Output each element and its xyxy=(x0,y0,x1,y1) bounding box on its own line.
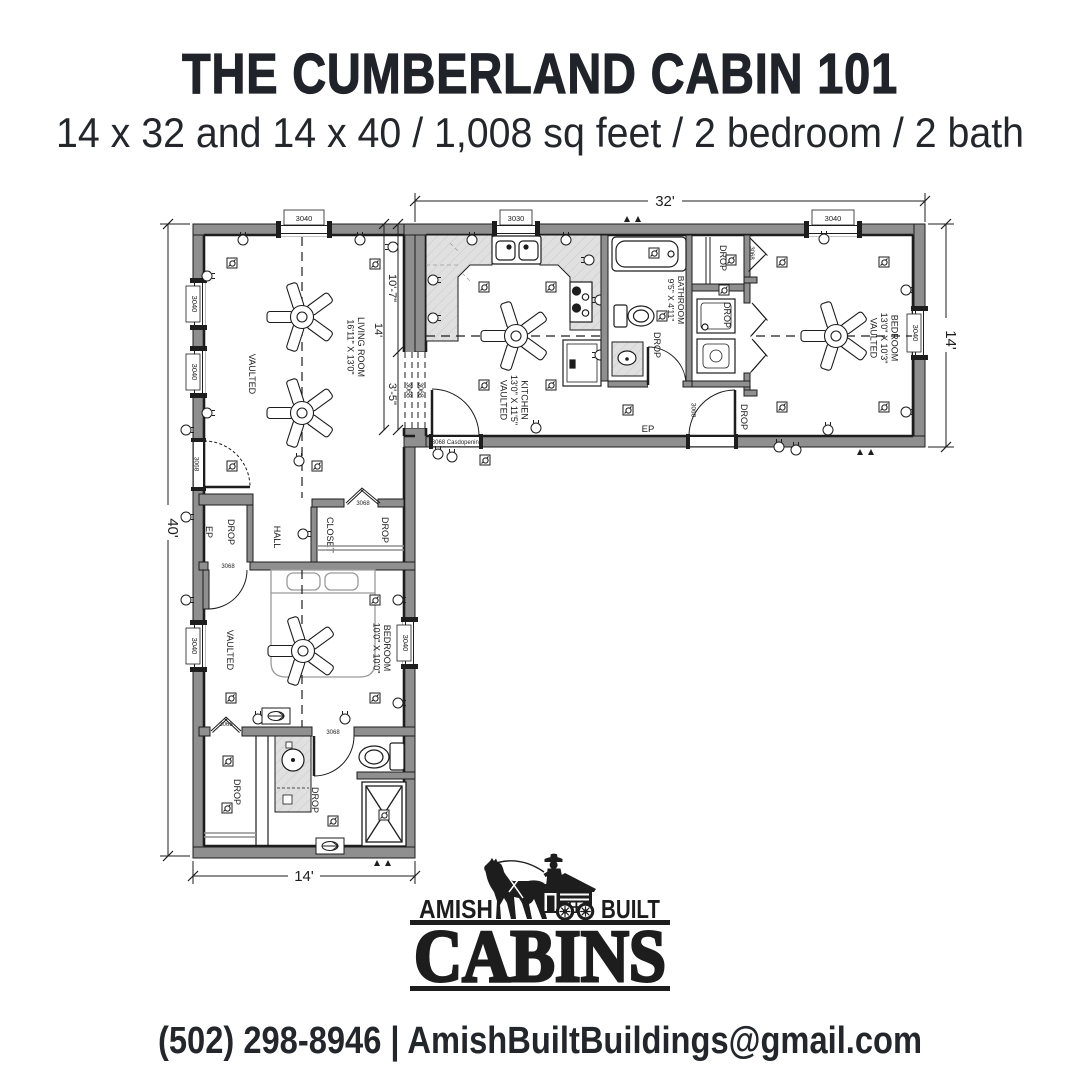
svg-text:3'-5": 3'-5" xyxy=(386,383,398,405)
svg-text:DROP: DROP xyxy=(226,519,236,545)
svg-text:3040: 3040 xyxy=(190,638,199,655)
svg-text:3040: 3040 xyxy=(911,325,920,342)
svg-text:3068: 3068 xyxy=(417,382,424,398)
svg-text:CABINS: CABINS xyxy=(414,916,666,998)
svg-text:3068: 3068 xyxy=(219,722,233,728)
svg-text:3068 Casdopening: 3068 Casdopening xyxy=(432,440,482,446)
svg-text:BATHROOM: BATHROOM xyxy=(676,276,686,324)
svg-text:KITCHEN: KITCHEN xyxy=(519,380,529,420)
svg-text:9'5" X 4'11": 9'5" X 4'11" xyxy=(666,279,676,322)
svg-text:3068: 3068 xyxy=(221,564,235,570)
svg-text:3068: 3068 xyxy=(405,382,412,398)
svg-text:BEDROOM: BEDROOM xyxy=(889,315,899,362)
svg-text:32': 32' xyxy=(655,193,675,210)
svg-text:3068: 3068 xyxy=(193,457,200,472)
svg-text:10'-7": 10'-7" xyxy=(386,274,398,302)
svg-text:13'0" X 11'5": 13'0" X 11'5" xyxy=(509,375,519,425)
svg-text:VAULTED: VAULTED xyxy=(225,630,235,671)
svg-text:DROP: DROP xyxy=(232,779,242,805)
svg-text:14': 14' xyxy=(372,323,384,337)
svg-text:VAULTED: VAULTED xyxy=(868,318,878,359)
svg-text:3040: 3040 xyxy=(825,214,842,223)
svg-text:EP: EP xyxy=(204,526,214,538)
svg-text:13'0" X 10'3": 13'0" X 10'3" xyxy=(879,313,889,364)
svg-text:THE CUMBERLAND CABIN 101: THE CUMBERLAND CABIN 101 xyxy=(182,42,898,106)
svg-text:DROP: DROP xyxy=(380,517,390,543)
svg-text:LIVING ROOM: LIVING ROOM xyxy=(356,317,366,377)
svg-text:40': 40' xyxy=(164,518,181,538)
svg-text:3068: 3068 xyxy=(748,246,754,260)
svg-text:14': 14' xyxy=(942,330,959,350)
svg-text:DROP: DROP xyxy=(652,332,662,358)
svg-text:BEDROOM: BEDROOM xyxy=(382,625,392,672)
svg-text:VAULTED: VAULTED xyxy=(247,354,257,395)
svg-text:(502) 298-8946 | AmishBuiltBui: (502) 298-8946 | AmishBuiltBuildings@gma… xyxy=(158,1020,922,1062)
svg-text:3068: 3068 xyxy=(326,730,340,736)
svg-text:DROP: DROP xyxy=(739,404,749,430)
svg-text:3030: 3030 xyxy=(508,214,525,223)
svg-text:14': 14' xyxy=(294,868,314,885)
svg-text:HALL: HALL xyxy=(272,526,282,549)
svg-text:3040: 3040 xyxy=(190,296,199,313)
svg-text:3040: 3040 xyxy=(296,214,313,223)
svg-text:VAULTED: VAULTED xyxy=(498,380,508,421)
svg-text:CLOSET: CLOSET xyxy=(325,517,335,554)
svg-text:10'0" X 10'0": 10'0" X 10'0" xyxy=(372,623,382,674)
svg-text:14 x 32 and 14 x 40 / 1,008 sq: 14 x 32 and 14 x 40 / 1,008 sq feet / 2 … xyxy=(56,109,1024,156)
svg-text:3040: 3040 xyxy=(190,364,199,381)
svg-text:EP: EP xyxy=(642,424,655,435)
svg-text:DROP: DROP xyxy=(722,302,732,328)
svg-text:3068: 3068 xyxy=(356,501,370,507)
svg-text:16'11" X 13'0": 16'11" X 13'0" xyxy=(346,319,356,374)
svg-text:3068: 3068 xyxy=(690,403,697,418)
svg-text:3040: 3040 xyxy=(401,635,410,652)
